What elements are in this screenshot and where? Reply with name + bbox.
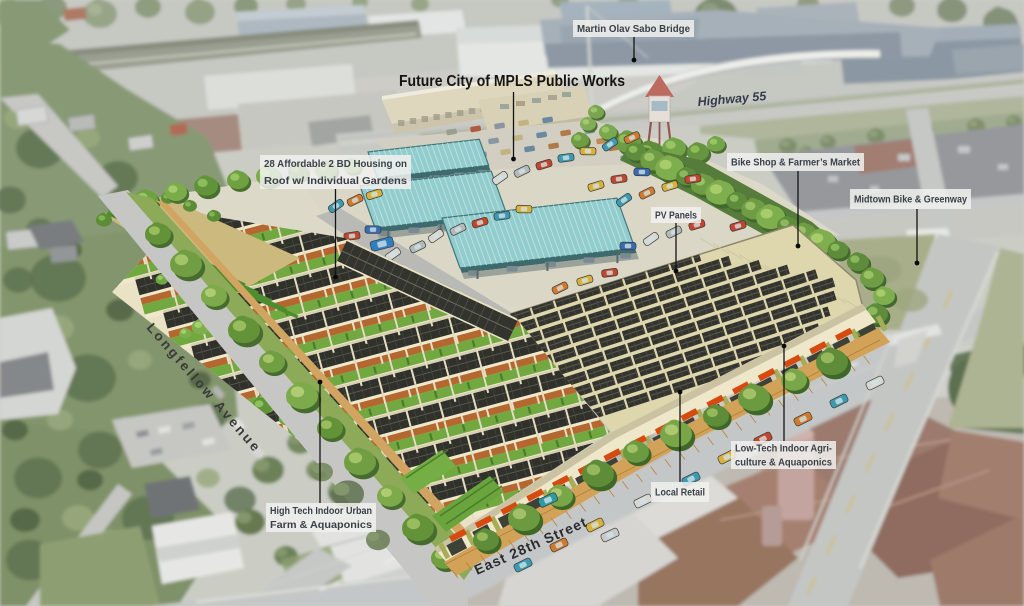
svg-text:Local Retail: Local Retail <box>655 488 705 499</box>
svg-text:PV Panels: PV Panels <box>655 211 697 222</box>
svg-text:Low-Tech Indoor Agri-: Low-Tech Indoor Agri- <box>735 444 832 455</box>
svg-text:Bike Shop & Farmer’s Market: Bike Shop & Farmer’s Market <box>731 158 861 169</box>
svg-text:Future City of MPLS Public Wor: Future City of MPLS Public Works <box>399 73 625 90</box>
svg-text:High Tech Indoor Urban: High Tech Indoor Urban <box>270 506 372 517</box>
svg-text:Martin Olav Sabo Bridge: Martin Olav Sabo Bridge <box>577 24 690 35</box>
svg-text:Midtown Bike & Greenway: Midtown Bike & Greenway <box>854 195 967 206</box>
svg-text:Farm & Aquaponics: Farm & Aquaponics <box>270 520 372 531</box>
svg-text:culture & Aquaponics: culture & Aquaponics <box>735 458 832 469</box>
svg-text:28 Affordable 2 BD Housing on: 28 Affordable 2 BD Housing on <box>264 159 407 170</box>
svg-text:Roof w/ Individual Gardens: Roof w/ Individual Gardens <box>264 176 407 187</box>
